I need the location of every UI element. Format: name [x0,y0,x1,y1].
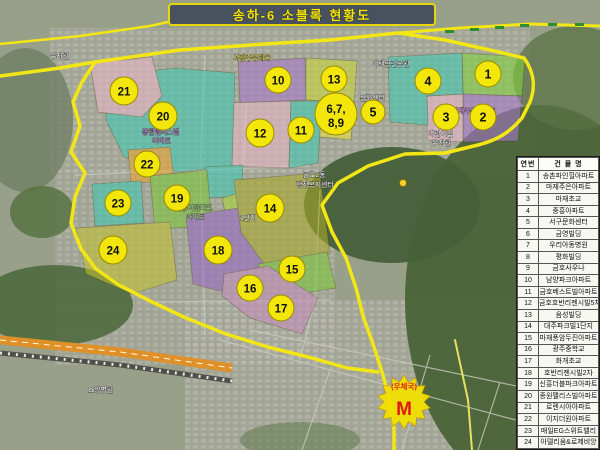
table-row: 1송촌파인힐아파트 [518,171,599,183]
table-row: 18호반리젠시빌2차 [518,367,599,379]
cell-no: 4 [518,205,539,217]
svg-text:8,9: 8,9 [328,118,344,130]
cell-no: 20 [518,390,539,402]
cell-name: 매일EG스위트밸리 [539,425,599,437]
cell-name: 종원팰리스빌아파트 [539,390,599,402]
block-marker-21[interactable]: 21 [110,77,138,105]
block-marker-15[interactable]: 15 [279,256,305,282]
svg-text:11: 11 [295,126,308,138]
table-row: 2마재주은아파트 [518,182,599,194]
map-label: 1단지 [240,213,256,222]
svg-text:5: 5 [370,106,377,120]
cell-no: 5 [518,217,539,229]
svg-text:6,7,: 6,7, [326,104,345,116]
cell-no: 1 [518,171,539,183]
table-row: 7우리아동병원 [518,240,599,252]
table-row: 23매일EG스위트밸리 [518,425,599,437]
cell-no: 6 [518,228,539,240]
svg-text:16: 16 [244,284,257,296]
block-marker-4[interactable]: 4 [415,68,441,94]
cell-no: 16 [518,344,539,356]
cell-name: 로렌시아아파트 [539,402,599,414]
cell-no: 2 [518,182,539,194]
svg-text:15: 15 [286,265,299,277]
svg-text:17: 17 [275,304,288,316]
cell-no: 22 [518,414,539,426]
table-row: 16광주중학교 [518,344,599,356]
cell-name: 신흥더블파크아파트 [539,379,599,391]
hill-center [304,147,480,263]
cell-name: 마재초교 [539,194,599,206]
cell-no: 7 [518,240,539,252]
cell-name: 송촌파인힐아파트 [539,171,599,183]
cell-no: 3 [518,194,539,206]
cell-name: 남양파크아파트 [539,275,599,287]
block-marker-10[interactable]: 10 [265,67,291,93]
map-label: 아파트 [152,136,171,145]
svg-text:22: 22 [141,160,154,172]
table-header-name: 건 물 명 [539,158,599,171]
cell-no: 14 [518,321,539,333]
svg-text:23: 23 [112,199,125,211]
table-row: 9금호사우나 [518,263,599,275]
block-marker-22[interactable]: 22 [134,151,160,177]
block-marker-12[interactable]: 12 [246,119,274,147]
table-row: 8평화빌딩 [518,252,599,264]
block-marker-16[interactable]: 16 [237,275,263,301]
svg-text:3: 3 [443,111,450,125]
table-row: 12금호호반리젠시빌5차 [518,298,599,310]
svg-text:13: 13 [328,75,341,87]
block-marker-13[interactable]: 13 [321,66,347,92]
table-row: 15마재풍암두진아파트 [518,333,599,345]
cell-no: 13 [518,309,539,321]
table-row: 20종원팰리스빌아파트 [518,390,599,402]
svg-text:1: 1 [485,68,492,82]
cell-name: 금호호반리젠시빌5차 [539,298,599,310]
map-label: 어린이집 [428,129,453,138]
table-row: 13음성빌딩 [518,309,599,321]
map-label: 유치원 [432,138,451,147]
cell-name: 화개초교 [539,356,599,368]
table-row: 11금호베스트빌아파트 [518,286,599,298]
cell-name: 평화빌딩 [539,252,599,264]
cell-name: 대주파크빌1단지 [539,321,599,333]
table-header-no: 연번 [518,158,539,171]
cell-no: 23 [518,425,539,437]
block-marker-11[interactable]: 11 [288,117,314,143]
svg-text:14: 14 [264,204,277,216]
cell-no: 9 [518,263,539,275]
table-row: 3마재초교 [518,194,599,206]
table-row: 4중흥아파트 [518,205,599,217]
poi-icon [400,180,407,187]
block-marker-24[interactable]: 24 [99,236,127,264]
svg-text:4: 4 [425,75,432,89]
cell-name: 이지더원아파트 [539,414,599,426]
cell-name: 아델리움&로제비앙 [539,437,599,449]
block-marker-14[interactable]: 14 [256,194,284,222]
map-label: 유치원 [50,51,69,60]
cell-no: 19 [518,379,539,391]
hill-left [10,186,74,238]
map-label: 금호2동 [303,171,326,179]
svg-text:10: 10 [272,76,285,88]
svg-text:21: 21 [118,87,131,99]
block-marker-1[interactable]: 1 [475,61,501,87]
block-marker-5[interactable]: 5 [361,100,385,124]
cell-no: 12 [518,298,539,310]
table-row: 14대주파크빌1단지 [518,321,599,333]
cell-name: 마재풍암두진아파트 [539,333,599,345]
map-label: 이택근린공원 [372,59,410,68]
cell-no: 24 [518,437,539,449]
post-office-letter: M [396,399,412,420]
svg-text:12: 12 [254,129,267,141]
map-label: 행정복지센터 [296,180,334,189]
table-row: 19신흥더블파크아파트 [518,379,599,391]
cell-name: 호반리젠시빌2차 [539,367,599,379]
block-marker-6-7--8-9[interactable]: 6,7,8,9 [315,93,357,135]
map-label: 서광주우체국 [233,53,271,62]
satellite-map: 유치원서광주우체국이택근린공원문화센터어린이집유치원금호2동행정복지센터요양병원… [0,0,600,450]
map-label: 아파트 [186,212,205,221]
cell-name: 음성빌딩 [539,309,599,321]
svg-text:18: 18 [212,246,225,258]
block-marker-3[interactable]: 3 [433,104,459,130]
map-label: 요양병원 [88,385,113,394]
cell-name: 금호사우나 [539,263,599,275]
block-marker-23[interactable]: 23 [105,190,131,216]
cell-no: 18 [518,367,539,379]
page-title: 송하-6 소블록 현황도 [168,3,436,26]
table-row: 6금영빌딩 [518,228,599,240]
cell-name: 광주중학교 [539,344,599,356]
cell-no: 10 [518,275,539,287]
table-row: 5서구문화센터 [518,217,599,229]
cell-name: 서구문화센터 [539,217,599,229]
table-row: 17화개초교 [518,356,599,368]
cell-no: 8 [518,252,539,264]
table-row: 21로렌시아아파트 [518,402,599,414]
svg-text:20: 20 [157,112,170,124]
cell-no: 11 [518,286,539,298]
status-map-page: 유치원서광주우체국이택근린공원문화센터어린이집유치원금호2동행정복지센터요양병원… [0,0,600,450]
block-marker-19[interactable]: 19 [164,185,190,211]
table-header-row: 연번 건 물 명 [518,158,599,171]
svg-text:24: 24 [107,246,120,258]
cell-no: 15 [518,333,539,345]
post-office-label: (우체국) [391,381,417,391]
cell-name: 마재주은아파트 [539,182,599,194]
cell-no: 17 [518,356,539,368]
table-row: 24아델리움&로제비앙 [518,437,599,449]
table-row: 22이지더원아파트 [518,414,599,426]
building-table: 연번 건 물 명 1송촌파인힐아파트2마재주은아파트3마재초교4중흥아파트5서구… [516,156,600,450]
table-row: 10남양파크아파트 [518,275,599,287]
block-marker-20[interactable]: 20 [149,102,177,130]
cell-name: 금호베스트빌아파트 [539,286,599,298]
svg-text:2: 2 [480,111,487,125]
cell-name: 우리아동병원 [539,240,599,252]
cell-name: 금영빌딩 [539,228,599,240]
block-marker-2[interactable]: 2 [470,104,496,130]
cell-no: 21 [518,402,539,414]
block-marker-18[interactable]: 18 [204,236,232,264]
svg-text:19: 19 [171,194,184,206]
block-marker-17[interactable]: 17 [268,295,294,321]
cell-name: 중흥아파트 [539,205,599,217]
